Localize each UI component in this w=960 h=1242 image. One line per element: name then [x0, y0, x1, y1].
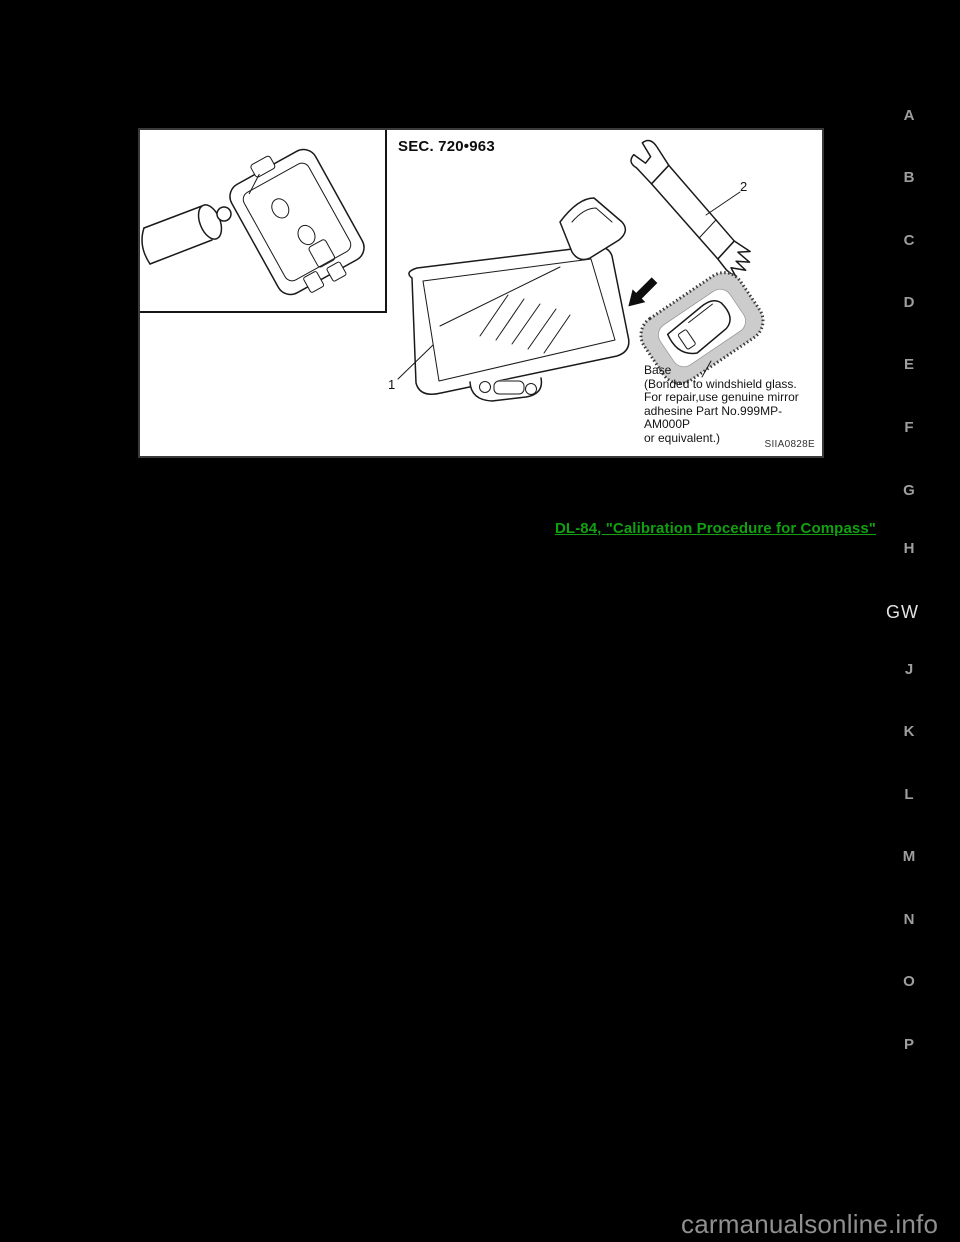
current-section-label: GW [886, 602, 919, 623]
mirror-diagram-figure: SEC. 720•963 1 2 Base (Bonded to windshi… [138, 128, 824, 458]
section-tab-p: P [898, 1036, 920, 1053]
section-tab-l: L [898, 786, 920, 803]
section-tab-a: A [898, 107, 920, 124]
arrow-icon [622, 274, 661, 313]
base-note-line: Base [644, 364, 820, 378]
stalk-drawing [626, 132, 758, 286]
base-note: Base (Bonded to windshield glass. For re… [644, 364, 820, 445]
base-note-line: (Bonded to windshield glass. [644, 378, 820, 392]
compass-calibration-link[interactable]: DL-84, "Calibration Procedure for Compas… [555, 520, 876, 537]
section-tab-b: B [898, 169, 920, 186]
section-tab-m: M [898, 848, 920, 865]
watermark-text: carmanualsonline.info [681, 1209, 938, 1240]
base-note-line: For repair,use genuine mirror [644, 391, 820, 405]
section-tab-d: D [898, 294, 920, 311]
manual-page: SEC. 720•963 1 2 Base (Bonded to windshi… [0, 0, 960, 1242]
section-tab-n: N [898, 911, 920, 928]
section-tab-h: H [898, 540, 920, 557]
section-tab-c: C [898, 232, 920, 249]
callout-2-label: 2 [740, 179, 747, 194]
section-tab-f: F [898, 419, 920, 436]
base-note-line: adhesine Part No.999MP-AM000P [644, 405, 820, 432]
section-tab-k: K [898, 723, 920, 740]
section-tab-g: G [898, 482, 920, 499]
section-tab-j: J [898, 661, 920, 678]
inset-frame [140, 130, 387, 313]
section-tab-o: O [898, 973, 920, 990]
section-tab-e: E [898, 356, 920, 373]
callout-1-label: 1 [388, 377, 395, 392]
section-code-label: SEC. 720•963 [398, 138, 495, 155]
mirror-drawing [398, 198, 629, 401]
figure-id-code: SIIA0828E [764, 439, 815, 450]
callout-2-leader [706, 192, 740, 215]
